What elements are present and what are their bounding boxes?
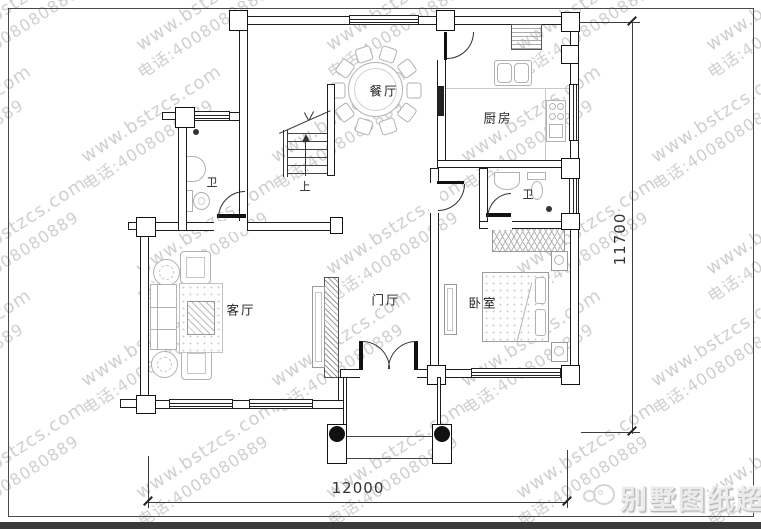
wall-post [561,12,580,32]
window-bath2-east [569,177,579,214]
window-living-south-1 [169,399,233,409]
bedroom-door-arc [438,184,465,211]
tv-screen [315,292,322,362]
wall-post [561,365,580,385]
stairs-up-arrow-shaft [305,140,306,176]
room-label-bathroom-upper: 卫 [207,174,218,190]
mascot-icon [583,481,619,511]
sofa [150,284,177,350]
kitchen-sink-bowl-right [514,63,529,83]
stairs-direction-label: 上 [300,178,311,194]
kitchen-door-arc [447,32,474,59]
dining-chair [407,83,422,99]
room-label-bathroom-lower: 卫 [523,186,534,202]
wall-post [561,45,579,64]
kitchen-sink-bowl-left [497,63,512,83]
wall-kitchen-south [437,160,579,168]
stairs-break-zigzag [304,112,309,120]
stair-tread [288,165,327,166]
stove-burner [549,113,556,120]
kitchen-counter-edge [446,88,578,89]
brand-logo-text: 别墅图纸超市 [620,478,761,517]
bathroom-sink [494,172,520,190]
plant-table-inner [159,265,174,280]
wall-stub [162,112,176,120]
room-label-living: 客厅 [226,300,255,319]
porch-column-line [437,377,441,425]
stove-burner [549,103,556,110]
pillow [535,277,546,304]
opening-entry [360,368,417,379]
wall-stair-east [327,84,335,176]
stair-tread [288,157,327,158]
armchair-seat [186,257,205,278]
stove-oven [549,124,563,138]
flue-shaft [511,24,542,50]
room-label-foyer: 门厅 [371,290,400,309]
wall-bath2-west [479,168,488,228]
wall-post [436,10,455,31]
wall-post [330,217,343,234]
window-living-south-2 [249,399,313,409]
stove-burner [557,103,564,110]
stair-tread [288,149,327,150]
dining-chair [354,45,374,64]
dim-line-vertical [632,23,633,434]
porch-column-line [343,377,347,425]
wardrobe [492,228,565,252]
stair-tread [288,173,327,174]
wall-post [229,10,248,31]
window-bath1-top [193,111,230,121]
dining-chair [396,102,418,124]
room-label-bedroom: 卧室 [468,293,497,312]
wall-living-west [140,222,149,409]
dining-chair [378,45,398,64]
wall-fill [438,86,444,116]
wall-post [561,213,580,230]
wall-post [175,107,195,128]
entry-door-arc-left [362,341,390,369]
toilet-tank [527,172,546,180]
dim-line-horizontal [148,502,568,503]
bath2-door-arc [487,193,511,219]
stairs-rail [283,130,288,177]
toilet-bowl-inner [198,197,205,205]
floor-plan: 11700 12000 餐厅 厨房 卫 卫 客厅 门厅 卧室 上 [0,0,761,529]
footer-bar [0,522,761,529]
wall-post [136,217,156,237]
stove-burner [557,113,564,120]
porch-step [347,458,432,459]
porch-step [347,436,432,437]
floor-drain [193,129,199,135]
tv-wall [324,277,339,378]
wall-stub [120,399,137,408]
room-label-kitchen: 厨房 [483,108,512,127]
porch-column [329,426,345,442]
pillow [535,309,546,336]
dining-chair [354,117,374,136]
window-kitchen-east [569,84,579,141]
dining-chair [378,117,398,136]
dim-label-width: 12000 [328,479,388,497]
dresser-mirror [447,288,453,331]
wall-post [136,395,156,414]
wall-bath1-west [178,112,187,231]
nightstand-lamp [554,346,564,356]
bathroom-sink [184,156,206,182]
room-label-dining: 餐厅 [369,81,398,100]
window-dining-top [349,15,419,25]
wall-post [561,158,580,179]
stairs-up-arrow-head [302,134,310,142]
window-bedroom-south [471,368,561,378]
coffee-table [187,301,215,335]
plant-table-inner [157,357,172,372]
dim-label-height: 11700 [611,204,629,274]
opening-bath2 [488,220,512,230]
armchair-seat [187,353,206,374]
opening-bath1 [214,221,247,232]
bath1-door-arc [218,191,245,218]
floor-drain [546,206,552,212]
floor-plan-page: www.bstzcs.com电话:4008080889www.bstzcs.co… [0,0,761,529]
porch-column [434,426,450,442]
entry-door-arc-right [388,341,416,369]
nightstand-lamp [554,255,564,265]
